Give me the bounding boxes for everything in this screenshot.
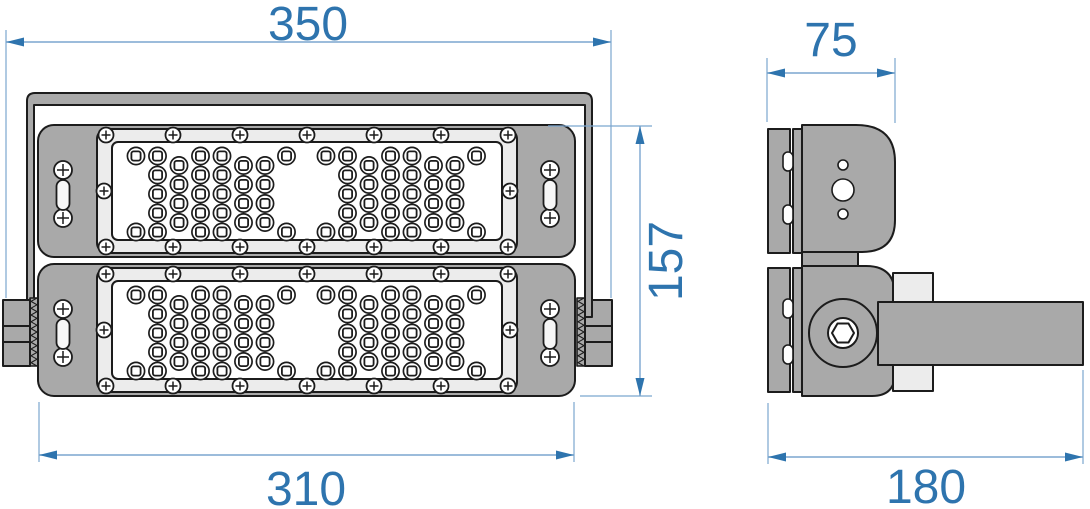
screw-icon — [434, 240, 449, 255]
dimension-overall-width-label: 350 — [268, 0, 348, 51]
slot-notch — [783, 152, 793, 171]
lens-icon — [149, 185, 166, 202]
lens-icon — [446, 353, 463, 370]
lens-icon — [403, 362, 420, 379]
lens-icon — [170, 296, 187, 313]
lens-icon — [213, 223, 230, 240]
lens-icon — [256, 353, 273, 370]
lens-icon — [360, 315, 377, 332]
lens-icon — [213, 305, 230, 322]
lens-icon — [170, 195, 187, 212]
lens-icon — [425, 176, 442, 193]
block — [3, 326, 30, 342]
lens-icon — [382, 362, 399, 379]
lens-icon — [382, 185, 399, 202]
screw-icon — [99, 240, 114, 255]
screw-icon — [233, 128, 248, 143]
lens-icon — [360, 214, 377, 231]
dimension-body-width: 310 — [39, 402, 574, 509]
screw-icon — [300, 379, 315, 394]
lens-icon — [192, 305, 209, 322]
lens-icon — [170, 176, 187, 193]
lens-icon — [425, 353, 442, 370]
lens-icon — [192, 286, 209, 303]
lens-icon — [256, 334, 273, 351]
lens-icon — [339, 223, 356, 240]
lens-icon — [446, 315, 463, 332]
lens-icon — [446, 157, 463, 174]
lens-icon — [235, 315, 252, 332]
lens-icon — [213, 185, 230, 202]
slot-notch — [783, 345, 793, 364]
slot-notch — [783, 205, 793, 224]
dimension-depth: 75 — [767, 14, 895, 123]
lens-icon — [278, 147, 295, 164]
lens-icon — [235, 195, 252, 212]
slot-notch — [783, 299, 793, 318]
lens-icon — [149, 305, 166, 322]
screw-icon — [233, 267, 248, 282]
lens-icon — [468, 223, 485, 240]
screw-icon — [300, 240, 315, 255]
arrowhead-bottom-icon — [636, 378, 645, 396]
lens-icon — [213, 286, 230, 303]
lens-icon — [339, 343, 356, 360]
lens-icon — [192, 362, 209, 379]
arrowhead-right-icon — [556, 451, 574, 460]
lens-icon — [213, 343, 230, 360]
mount-hole — [832, 179, 854, 201]
screw-icon — [434, 267, 449, 282]
lens-icon — [382, 204, 399, 221]
lens-icon — [382, 223, 399, 240]
lens-icon — [256, 176, 273, 193]
lens-icon — [403, 305, 420, 322]
lens-icon — [403, 185, 420, 202]
screw-icon — [501, 267, 516, 282]
block — [585, 326, 612, 342]
lens-icon — [213, 362, 230, 379]
flood-light-dimension-drawing: 350 310 157 75 180 — [0, 0, 1090, 509]
lens-icon — [360, 157, 377, 174]
front-strip — [793, 268, 802, 392]
lens-icon — [382, 305, 399, 322]
cap-slot — [544, 180, 557, 210]
screw-icon — [233, 379, 248, 394]
adjustment-blocks-right — [577, 298, 612, 366]
screw-icon — [300, 128, 315, 143]
lens-icon — [192, 147, 209, 164]
lens-icon — [213, 147, 230, 164]
screw-icon — [434, 379, 449, 394]
arrowhead-left-icon — [768, 453, 786, 462]
arrowhead-left-icon — [39, 451, 57, 460]
lens-icon — [256, 315, 273, 332]
lens-icon — [278, 223, 295, 240]
lens-icon — [192, 324, 209, 341]
screw-icon — [166, 379, 181, 394]
cap-slot — [57, 180, 70, 210]
screw-icon — [54, 348, 72, 366]
lens-icon — [149, 324, 166, 341]
lens-icon — [235, 157, 252, 174]
lens-icon — [403, 343, 420, 360]
lens-icon — [446, 195, 463, 212]
lens-icon — [339, 185, 356, 202]
module-1 — [38, 125, 575, 257]
side-view — [768, 125, 1083, 396]
screw-icon — [166, 128, 181, 143]
screw-icon — [541, 300, 559, 318]
screw-icon — [97, 323, 112, 338]
lens-icon — [360, 334, 377, 351]
lens-icon — [403, 324, 420, 341]
lens-icon — [127, 286, 144, 303]
lens-icon — [425, 214, 442, 231]
arrowhead-right-icon — [593, 38, 611, 47]
screw-icon — [503, 184, 518, 199]
lens-icon — [382, 343, 399, 360]
screw-icon — [503, 323, 518, 338]
lens-icon — [446, 334, 463, 351]
lens-icon — [127, 362, 144, 379]
lens-icon — [317, 286, 334, 303]
lens-icon — [317, 362, 334, 379]
lens-icon — [339, 166, 356, 183]
lens-icon — [446, 214, 463, 231]
lens-icon — [278, 362, 295, 379]
lens-icon — [382, 166, 399, 183]
lens-icon — [256, 296, 273, 313]
lens-icon — [149, 223, 166, 240]
lens-icon — [382, 286, 399, 303]
lens-icon — [403, 204, 420, 221]
lens-icon — [339, 204, 356, 221]
lens-icon — [213, 166, 230, 183]
arrowhead-right-icon — [877, 69, 895, 78]
extension-lines — [767, 58, 895, 123]
screw-icon — [54, 300, 72, 318]
lens-icon — [213, 204, 230, 221]
lens-icon — [149, 362, 166, 379]
lens-icon — [149, 286, 166, 303]
lens-icon — [403, 147, 420, 164]
screw-icon — [54, 161, 72, 179]
lens-icon — [170, 157, 187, 174]
lens-icon — [360, 353, 377, 370]
screw-icon — [367, 267, 382, 282]
lens-icon — [192, 204, 209, 221]
arrowhead-left-icon — [6, 38, 24, 47]
lens-icon — [403, 286, 420, 303]
lens-icon — [127, 223, 144, 240]
lens-icon — [170, 315, 187, 332]
lens-icon — [256, 157, 273, 174]
technical-drawing-canvas: 350 310 157 75 180 — [0, 0, 1090, 509]
lens-icon — [446, 296, 463, 313]
screw-hole — [838, 160, 848, 170]
screw-icon — [166, 240, 181, 255]
lens-icon — [425, 157, 442, 174]
lens-icon — [149, 166, 166, 183]
lens-icon — [468, 362, 485, 379]
front-strip — [793, 129, 802, 253]
lens-icon — [339, 147, 356, 164]
extension-lines — [39, 402, 574, 462]
dimension-depth-label: 75 — [804, 14, 857, 67]
screw-icon — [99, 379, 114, 394]
arrowhead-top-icon — [636, 126, 645, 144]
lens-icon — [213, 324, 230, 341]
dimension-overall-depth-label: 180 — [886, 461, 966, 509]
lens-icon — [192, 223, 209, 240]
lens-icon — [468, 286, 485, 303]
lens-icon — [192, 343, 209, 360]
lens-icon — [149, 147, 166, 164]
block — [3, 342, 30, 366]
lens-icon — [339, 305, 356, 322]
screw-icon — [99, 128, 114, 143]
dimension-height-label: 157 — [640, 221, 693, 301]
screw-icon — [434, 128, 449, 143]
lens-icon — [149, 204, 166, 221]
lens-icon — [382, 324, 399, 341]
lens-icon — [339, 324, 356, 341]
adjustment-blocks-left — [3, 298, 38, 366]
mounting-arm — [878, 302, 1083, 365]
screw-icon — [367, 128, 382, 143]
dimension-body-width-label: 310 — [266, 463, 346, 509]
screw-icon — [233, 240, 248, 255]
arrowhead-right-icon — [1065, 453, 1083, 462]
lens-icon — [149, 343, 166, 360]
screw-icon — [99, 267, 114, 282]
lens-icon — [235, 334, 252, 351]
lens-icon — [170, 334, 187, 351]
lens-icon — [468, 147, 485, 164]
lens-icon — [360, 176, 377, 193]
screw-hole — [838, 209, 848, 219]
lens-icon — [256, 214, 273, 231]
lens-icon — [317, 147, 334, 164]
screw-icon — [541, 209, 559, 227]
lens-icon — [360, 296, 377, 313]
screw-icon — [367, 240, 382, 255]
lens-icon — [360, 195, 377, 212]
lens-icon — [425, 315, 442, 332]
lens-icon — [403, 166, 420, 183]
lens-icon — [425, 334, 442, 351]
lens-icon — [170, 353, 187, 370]
lens-icon — [170, 214, 187, 231]
cap-slot — [57, 319, 70, 349]
lens-icon — [235, 353, 252, 370]
screw-icon — [166, 267, 181, 282]
lens-icon — [235, 296, 252, 313]
pivot-joint — [809, 299, 877, 367]
lens-icon — [127, 147, 144, 164]
block — [3, 300, 30, 326]
lens-icon — [278, 286, 295, 303]
lens-icon — [256, 195, 273, 212]
side-module-plates — [768, 129, 802, 392]
lens-icon — [425, 296, 442, 313]
cap-slot — [544, 319, 557, 349]
screw-icon — [367, 379, 382, 394]
screw-icon — [300, 267, 315, 282]
module-2 — [38, 264, 575, 396]
front-view — [3, 93, 612, 396]
lens-icon — [317, 223, 334, 240]
lens-icon — [446, 176, 463, 193]
lens-icon — [235, 176, 252, 193]
lens-icon — [339, 362, 356, 379]
block — [585, 342, 612, 366]
lens-icon — [192, 166, 209, 183]
lens-icon — [403, 223, 420, 240]
screw-icon — [54, 209, 72, 227]
lens-icon — [382, 147, 399, 164]
screw-icon — [541, 161, 559, 179]
front-plate — [768, 268, 790, 392]
screw-icon — [541, 348, 559, 366]
lens-icon — [425, 195, 442, 212]
lens-icon — [235, 214, 252, 231]
lens-icon — [192, 185, 209, 202]
screw-icon — [501, 128, 516, 143]
front-plate — [768, 129, 790, 253]
hex-bolt-icon — [832, 324, 854, 343]
screw-icon — [501, 379, 516, 394]
lens-icon — [339, 286, 356, 303]
screw-icon — [97, 184, 112, 199]
screw-icon — [501, 240, 516, 255]
arrowhead-left-icon — [767, 69, 785, 78]
